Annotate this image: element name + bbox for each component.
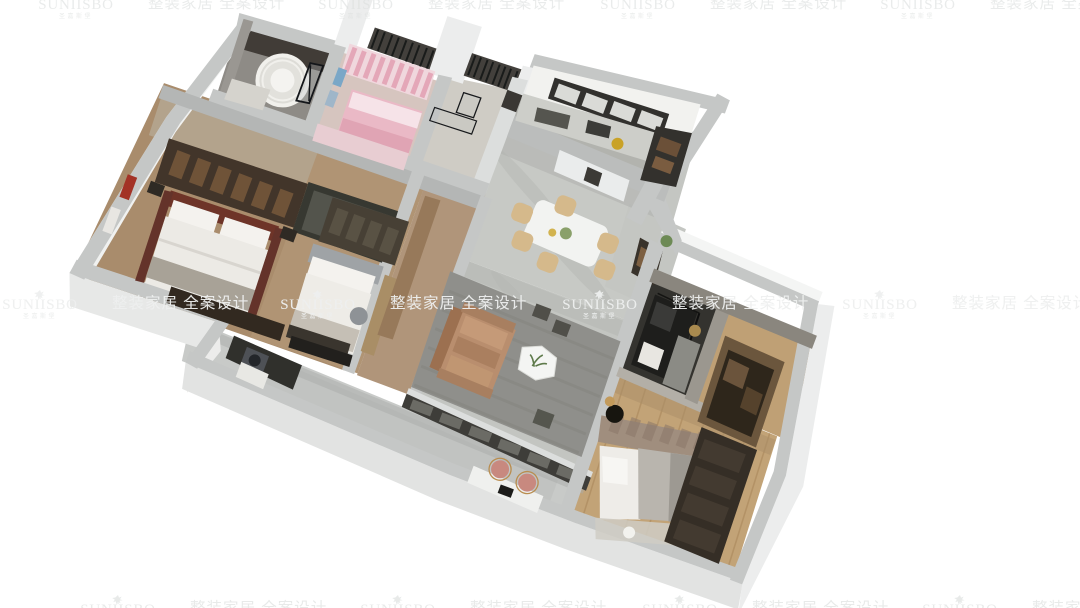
svg-text:整装家居 全案设计: 整装家居 全案设计 (672, 294, 809, 312)
svg-text:整装家居 全案设计: 整装家居 全案设计 (710, 0, 847, 12)
svg-text:整装家居 全案设计: 整装家居 全案设计 (428, 0, 565, 12)
svg-text:SUNIISBO: SUNIISBO (642, 602, 718, 608)
svg-text:整装家居 全案设计: 整装家居 全案设计 (1032, 599, 1080, 608)
svg-text:圣嘉斯堡: 圣嘉斯堡 (23, 312, 57, 320)
svg-text:SUNIISBO: SUNIISBO (842, 297, 918, 313)
svg-text:SUNIISBO: SUNIISBO (922, 602, 998, 608)
svg-text:圣嘉斯堡: 圣嘉斯堡 (301, 312, 335, 320)
svg-text:SUNIISBO: SUNIISBO (318, 0, 394, 13)
svg-text:整装家居 全案设计: 整装家居 全案设计 (112, 294, 249, 312)
svg-text:圣嘉斯堡: 圣嘉斯堡 (621, 12, 655, 20)
svg-text:圣嘉斯堡: 圣嘉斯堡 (59, 12, 93, 20)
svg-text:SUNIISBO: SUNIISBO (280, 297, 356, 313)
svg-text:圣嘉斯堡: 圣嘉斯堡 (901, 12, 935, 20)
svg-text:整装家居 全案设计: 整装家居 全案设计 (190, 599, 327, 608)
svg-text:整装家居 全案设计: 整装家居 全案设计 (752, 599, 889, 608)
svg-text:SUNIISBO: SUNIISBO (360, 602, 436, 608)
svg-text:圣嘉斯堡: 圣嘉斯堡 (863, 312, 897, 320)
svg-text:整装家居 全案设计: 整装家居 全案设计 (990, 0, 1080, 12)
svg-text:整装家居 全案设计: 整装家居 全案设计 (148, 0, 285, 12)
svg-text:SUNIISBO: SUNIISBO (880, 0, 956, 13)
svg-text:SUNIISBO: SUNIISBO (562, 297, 638, 313)
svg-text:SUNIISBO: SUNIISBO (38, 0, 114, 13)
svg-text:SUNIISBO: SUNIISBO (80, 602, 156, 608)
svg-text:圣嘉斯堡: 圣嘉斯堡 (339, 12, 373, 20)
svg-text:整装家居 全案设计: 整装家居 全案设计 (470, 599, 607, 608)
svg-text:整装家居 全案设计: 整装家居 全案设计 (390, 294, 527, 312)
svg-text:整装家居 全案设计: 整装家居 全案设计 (952, 294, 1080, 312)
svg-text:SUNIISBO: SUNIISBO (2, 297, 78, 313)
svg-text:圣嘉斯堡: 圣嘉斯堡 (583, 312, 617, 320)
svg-text:SUNIISBO: SUNIISBO (600, 0, 676, 13)
